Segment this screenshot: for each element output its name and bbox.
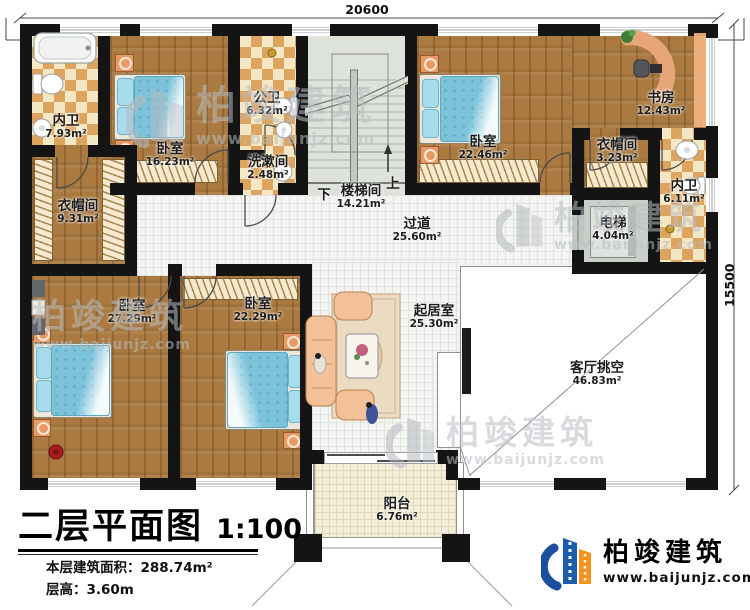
brand-name: 柏竣建筑 [603, 540, 750, 566]
quilt [227, 352, 288, 428]
balcony-sliding-door [324, 452, 438, 464]
nightstand [420, 146, 439, 164]
room-label-wash-room: 洗漱间2.48m² [247, 155, 288, 181]
wall-int [572, 262, 706, 274]
wardrobe-closet-right [586, 162, 648, 188]
wall-int [110, 183, 195, 195]
wall-int [296, 24, 308, 195]
dimension-top: 20600 [332, 2, 402, 17]
wall-int [405, 24, 417, 195]
room-label-bedroom-top-left: 卧室16.23m² [146, 142, 195, 168]
wall-int [584, 188, 648, 200]
title-underline-thin [18, 554, 258, 555]
nightstand [33, 325, 51, 343]
window [196, 478, 276, 490]
room-label-living-void: 客厅挑空46.83m² [570, 361, 624, 387]
wall-balcony-stub-right [436, 450, 458, 464]
pillow [117, 78, 134, 106]
wall-int [125, 150, 137, 264]
window [48, 478, 140, 490]
wardrobe-closet-left-b [102, 159, 125, 261]
pillow [36, 380, 52, 412]
plan-title: 二层平面图 [18, 498, 203, 549]
wall-int [572, 128, 584, 195]
wall-int [278, 183, 308, 195]
window [480, 478, 554, 490]
nightstand [420, 55, 439, 73]
window [60, 24, 120, 36]
pillow [36, 347, 52, 379]
room-label-balcony: 阳台6.76m² [376, 497, 417, 523]
floor-height-text: 层高：3.60m [46, 578, 134, 598]
wall-int [216, 264, 312, 276]
wall-int [584, 128, 590, 140]
nightstand [283, 432, 301, 449]
brand-logo-block: 柏竣建筑 www.baijunjz.com [541, 534, 750, 592]
window [140, 24, 212, 36]
balcony-pier-right [442, 534, 470, 562]
elevator-door [572, 215, 584, 250]
window [606, 478, 686, 490]
balcony-lines [252, 548, 512, 606]
wall-int [572, 195, 584, 215]
floor-plan-canvas: 20600 15500 下 上 柏竣建筑 www.baijunjz.com 柏竣… [0, 0, 750, 610]
quilt [51, 345, 110, 416]
wall-int [228, 24, 240, 195]
wall-int [648, 140, 660, 262]
dimension-right: 15500 [722, 250, 737, 320]
pillow [422, 79, 439, 108]
wall-int [32, 145, 55, 157]
window [438, 24, 538, 36]
pillow [117, 107, 134, 135]
plan-scale: 1:100 [216, 514, 302, 545]
wall-outer-left [20, 24, 32, 490]
room-label-living-room: 起居室25.30m² [410, 304, 459, 330]
wardrobe-closet-left-a [34, 159, 53, 261]
brand-website: www.baijunjz.com [603, 570, 750, 586]
room-label-corridor: 过道25.60m² [393, 217, 442, 243]
brand-logo-icon [541, 534, 595, 592]
wall-int [98, 24, 110, 145]
floor-area-text: 本层建筑面积：288.74m² [46, 556, 213, 576]
wall-int [417, 183, 540, 195]
wall-int [32, 264, 137, 276]
room-label-bedroom-bottom-left: 卧室27.29m² [108, 299, 157, 325]
window [600, 24, 688, 36]
wall-balcony-corner [446, 464, 458, 480]
nightstand [115, 54, 134, 72]
room-label-bedroom-top-right: 卧室22.46m² [459, 135, 508, 161]
wall-int [694, 128, 706, 140]
title-block: 二层平面图 1:100 [18, 498, 302, 549]
quilt [134, 76, 184, 138]
room-label-closet-right: 衣帽间3.23m² [596, 138, 637, 164]
window [292, 24, 330, 36]
room-label-bath-right: 内卫6.11m² [663, 179, 704, 205]
room-label-study: 书房12.43m² [637, 91, 686, 117]
wall-int [228, 183, 243, 195]
quilt [440, 76, 499, 142]
nightstand [283, 333, 301, 350]
stair-up-label: 上 [386, 172, 400, 192]
room-label-bath-top-left: 内卫7.93m² [45, 114, 86, 140]
room-label-closet-left: 衣帽间9.31m² [57, 199, 98, 225]
stair-down-label: 下 [317, 183, 331, 203]
title-underline [18, 549, 258, 552]
window [706, 178, 718, 212]
room-label-elevator: 电梯4.04m² [592, 216, 633, 242]
room-label-public-bath: 公卫6.32m² [246, 91, 287, 117]
wall-int [168, 264, 180, 478]
room-label-stairwell: 楼梯间14.21m² [337, 184, 386, 210]
room-label-bedroom-bottom-mid: 卧室22.29m² [234, 297, 283, 323]
pillow [422, 109, 439, 138]
nightstand [33, 419, 51, 437]
window [706, 38, 718, 126]
wall-int [300, 264, 312, 478]
